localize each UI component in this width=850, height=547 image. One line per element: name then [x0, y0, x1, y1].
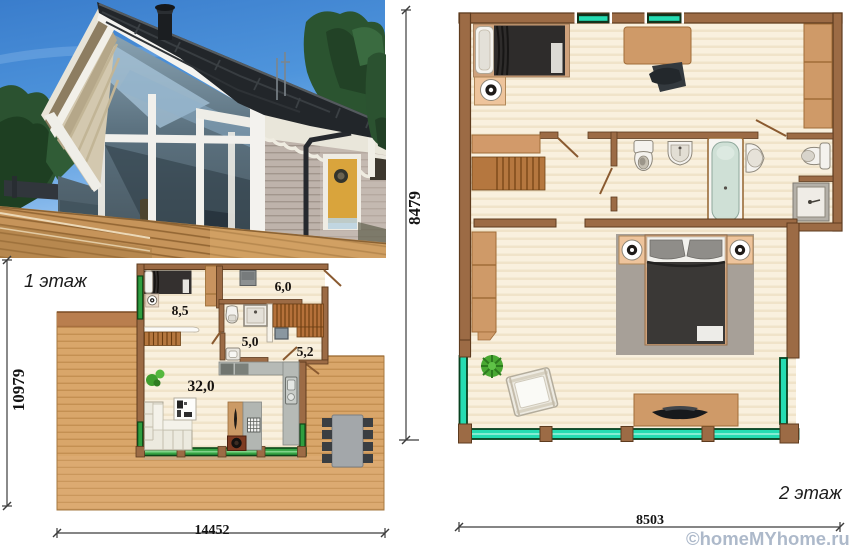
svg-text:5,0: 5,0: [242, 334, 259, 349]
svg-text:6,0: 6,0: [275, 279, 292, 294]
svg-text:8,5: 8,5: [172, 303, 189, 318]
svg-text:8503: 8503: [636, 513, 664, 528]
svg-text:©homeMYhome.ru: ©homeMYhome.ru: [686, 528, 850, 547]
svg-text:14452: 14452: [195, 523, 230, 538]
svg-text:8479: 8479: [405, 191, 424, 225]
svg-text:1 этаж: 1 этаж: [24, 270, 88, 291]
svg-text:2 этаж: 2 этаж: [778, 482, 843, 503]
svg-text:10979: 10979: [9, 369, 28, 412]
svg-text:32,0: 32,0: [187, 378, 214, 395]
svg-text:5,2: 5,2: [297, 344, 314, 359]
